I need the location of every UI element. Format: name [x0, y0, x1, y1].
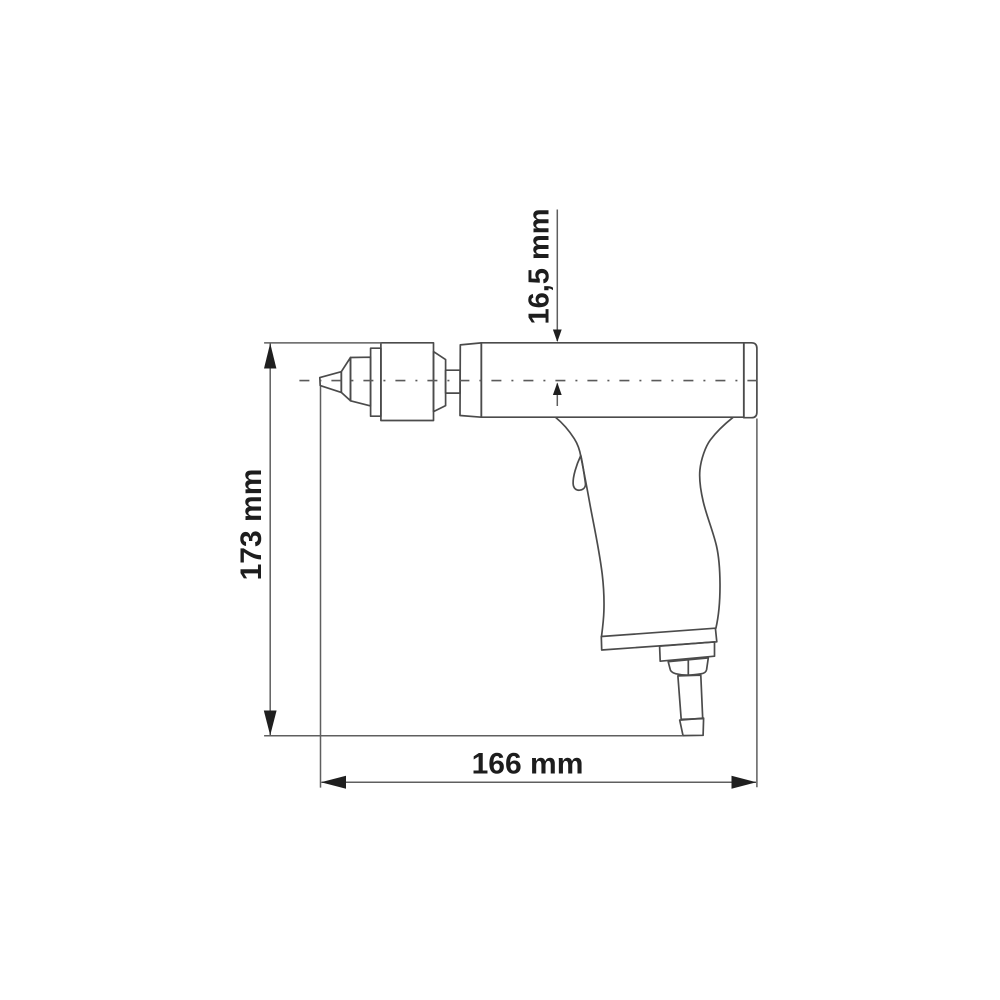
svg-text:16,5 mm: 16,5 mm	[524, 208, 556, 324]
svg-text:173 mm: 173 mm	[235, 469, 268, 581]
svg-text:166 mm: 166 mm	[472, 748, 584, 781]
